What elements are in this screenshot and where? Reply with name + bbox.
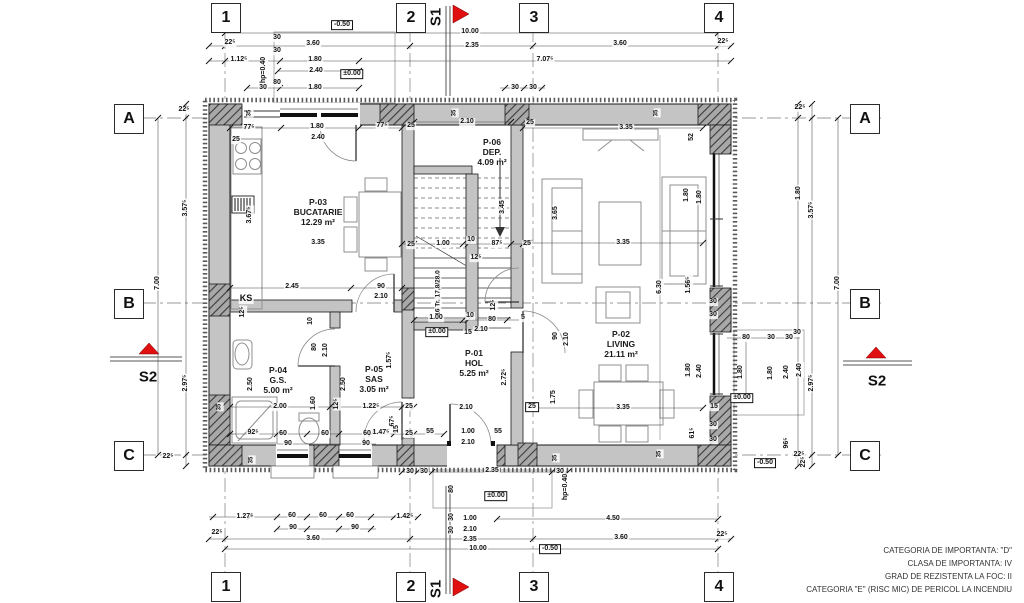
dimension-label: 30 — [419, 468, 429, 476]
dimension-label: 2.45 — [284, 283, 300, 291]
dimension-label: 1.80 — [696, 189, 704, 205]
dimension-label: 80 — [311, 342, 319, 352]
dimension-label: 35 — [217, 403, 224, 412]
dimension-label: 1.42⁵ — [396, 513, 415, 521]
dimension-label: 35 — [654, 109, 661, 118]
room-id: P-04 — [263, 365, 292, 375]
dimension-label: 80 — [487, 316, 497, 324]
dimension-label: 60 — [318, 512, 328, 520]
grid-bubble-row-A-left: A — [114, 104, 144, 134]
room-id: P-05 — [359, 364, 388, 374]
dimension-label: 3.45 — [499, 199, 507, 215]
dimension-label: 1.56⁵ — [685, 276, 693, 295]
dimension-label: 1.00 — [435, 240, 451, 248]
ks-label: KS — [239, 294, 254, 304]
notes-block: CATEGORIA DE IMPORTANTA: "D"CLASA DE IMP… — [806, 544, 1012, 596]
dimension-label: hp=0.40 — [562, 473, 570, 501]
dimension-label: 22⁵ — [715, 531, 728, 539]
dimension-label: 1.00 — [428, 314, 444, 322]
dimension-label: 3.35 — [310, 239, 326, 247]
dimension-label: ±0.00 — [484, 491, 507, 501]
room-label-p-02: P-02LIVING21.11 m² — [604, 329, 638, 359]
stair-label: 16 Tr. 17,8/28.0 — [434, 269, 441, 317]
room-name: SAS — [359, 374, 388, 384]
dimension-label: 12⁵ — [469, 254, 482, 262]
dimension-label: ±0.00 — [730, 393, 753, 403]
dimension-label: 35 — [247, 109, 254, 118]
dimension-label: 30 — [784, 334, 794, 342]
grid-bubble-col-1-bottom: 1 — [211, 572, 241, 602]
dimension-label: 90 — [288, 524, 298, 532]
dimension-label: 30 — [448, 512, 456, 522]
dimension-label: 2.35 — [462, 536, 478, 544]
dimension-label: 30 — [272, 47, 282, 55]
section-s2-left-label: S2 — [139, 369, 157, 386]
grid-bubble-col-4-bottom: 4 — [704, 572, 734, 602]
dimension-label: 2.40 — [796, 362, 804, 378]
dimension-label: 2.50 — [247, 376, 255, 392]
dimension-label: 90 — [361, 440, 371, 448]
room-name: LIVING — [604, 339, 638, 349]
room-id: P-01 — [459, 348, 488, 358]
grid-bubble-row-C-right: C — [850, 441, 880, 471]
section-s1-top-label: S1 — [428, 8, 445, 26]
dimension-label: 15 — [709, 403, 719, 411]
note-line: CATEGORIA DE IMPORTANTA: "D" — [806, 544, 1012, 557]
dimension-label: 30 — [405, 468, 415, 476]
dimension-label: 2.97⁵ — [808, 374, 816, 393]
dimension-label: 22⁵ — [210, 529, 223, 537]
dimension-label: 5 — [520, 314, 526, 322]
dimension-label: 25 — [231, 136, 241, 144]
dimension-label: 3.60 — [305, 40, 321, 48]
dimension-label: 90 — [552, 331, 560, 341]
dimension-label: 7.07⁵ — [536, 56, 555, 64]
dimension-label: 35 — [553, 454, 560, 463]
dimension-label: 2.10 — [322, 342, 330, 358]
dimension-label: 2.97⁵ — [182, 374, 190, 393]
dimension-label: 3.60 — [613, 534, 629, 542]
section-s1-bottom-label: S1 — [428, 580, 445, 598]
dimension-label: 2.40 — [308, 67, 324, 75]
note-line: CATEGORIA "E" (RISC MIC) DE PERICOL LA I… — [806, 583, 1012, 596]
dimension-label: 1.80 — [767, 365, 775, 381]
dimension-label: 10.00 — [460, 28, 480, 36]
dimension-label: 3.35 — [615, 404, 631, 412]
dimension-label: 90 — [350, 524, 360, 532]
dimension-label: hp=0.40 — [260, 56, 268, 84]
room-label-p-04: P-04G.S.5.00 m² — [263, 365, 292, 395]
dimension-label: 1.80 — [309, 123, 325, 131]
dimension-label: 15 — [393, 424, 401, 434]
dimension-label: 2.72⁵ — [501, 368, 509, 387]
room-area: 12.29 m² — [294, 217, 343, 227]
dimension-label: 3.57⁵ — [182, 199, 190, 218]
dimension-label: 6.30 — [656, 279, 664, 295]
dimension-label: 1.80 — [307, 56, 323, 64]
note-line: GRAD DE REZISTENTA LA FOC: II — [806, 570, 1012, 583]
dimension-label: 2.40 — [310, 134, 326, 142]
dimension-label: 87⁵ — [490, 240, 503, 248]
section-s2-right-label: S2 — [868, 373, 886, 390]
dimension-label: 60 — [362, 430, 372, 438]
dimension-label: 30 — [766, 334, 776, 342]
dimension-label: 2.10 — [473, 326, 489, 334]
dimension-label: 3.35 — [618, 124, 634, 132]
dimension-label: -0.50 — [539, 544, 561, 554]
dimension-label: 92⁵ — [246, 429, 259, 437]
dimension-label: 1.80 — [307, 84, 323, 92]
dimension-label: 60 — [345, 512, 355, 520]
dimension-label: 12⁵ — [239, 305, 247, 318]
grid-bubble-col-3-top: 3 — [519, 3, 549, 33]
dimension-label: 25 — [404, 430, 414, 438]
dimension-label: 2.35 — [464, 42, 480, 50]
dimension-label: 35 — [657, 450, 664, 459]
dimension-label: 25 — [525, 119, 535, 127]
dimension-label: 4.50 — [605, 515, 621, 523]
room-label-p-03: P-03BUCATARIE12.29 m² — [294, 197, 343, 227]
dimension-label: 1.80 — [685, 362, 693, 378]
dimension-label: 52 — [688, 132, 696, 142]
dimension-label: 55 — [493, 428, 503, 436]
grid-bubble-col-1-top: 1 — [211, 3, 241, 33]
dimension-label: 3.35 — [615, 239, 631, 247]
dimension-label: 55 — [425, 428, 435, 436]
dimension-label: 1.00 — [462, 515, 478, 523]
dimension-label: 60 — [278, 430, 288, 438]
dimension-label: 2.00 — [272, 403, 288, 411]
room-label-p-01: P-01HOL5.25 m² — [459, 348, 488, 378]
dimension-label: 10 — [465, 312, 475, 320]
dimension-label: 12⁵ — [490, 298, 498, 311]
grid-bubble-col-3-bottom: 3 — [519, 572, 549, 602]
room-area: 4.09 m² — [477, 157, 506, 167]
grid-bubble-row-B-right: B — [850, 289, 880, 319]
room-id: P-02 — [604, 329, 638, 339]
dimension-label: 90 — [283, 440, 293, 448]
dimension-label: 35 — [249, 456, 256, 465]
dimension-label: 15 — [463, 329, 473, 337]
dimension-label: 25 — [406, 122, 416, 130]
dimension-label: 2.35 — [484, 467, 500, 475]
dimension-label: 1.12⁵ — [230, 56, 249, 64]
grid-bubble-row-A-right: A — [850, 104, 880, 134]
room-label-p-05: P-05SAS3.05 m² — [359, 364, 388, 394]
dimension-label: 2.50 — [340, 376, 348, 392]
dimension-label: 77⁵ — [375, 122, 388, 130]
dimension-label: 3.67⁵ — [246, 206, 254, 225]
dimension-label: 2.10 — [458, 404, 474, 412]
dimension-label: 1.57⁵ — [386, 351, 394, 370]
grid-bubble-col-2-top: 2 — [396, 3, 426, 33]
dimension-label: -0.50 — [331, 20, 353, 30]
dimension-label: 10 — [466, 236, 476, 244]
room-name: BUCATARIE — [294, 207, 343, 217]
room-area: 5.00 m² — [263, 385, 292, 395]
room-area: 5.25 m² — [459, 368, 488, 378]
room-area: 3.05 m² — [359, 384, 388, 394]
dimension-label: 25 — [522, 240, 532, 248]
dimension-label: 2.40 — [696, 363, 704, 379]
dimension-label: 1.47⁵ — [372, 429, 391, 437]
dimension-label: 2.10 — [462, 526, 478, 534]
dimension-label: 2.10 — [563, 331, 571, 347]
dimension-label: 30 — [708, 421, 718, 429]
room-label-p-06: P-06DEP.4.09 m² — [477, 137, 506, 167]
dimension-label: 60 — [287, 512, 297, 520]
dimension-label: 25 — [525, 402, 539, 412]
dimension-label: 10 — [307, 316, 315, 326]
dimension-label: 2.10 — [459, 118, 475, 126]
dimension-label: 25 — [404, 403, 414, 411]
room-name: G.S. — [263, 375, 292, 385]
dimension-label: 1.00 — [460, 428, 476, 436]
dimension-label: 7.00 — [834, 275, 842, 291]
room-id: P-03 — [294, 197, 343, 207]
dimension-label: 2.40 — [783, 364, 791, 380]
dimension-label: 30 — [510, 84, 520, 92]
dimension-label: 30 — [258, 84, 268, 92]
dimension-label: 30 — [272, 34, 282, 42]
dimension-label: 3.57⁵ — [808, 201, 816, 220]
dimension-label: 35 — [452, 109, 459, 118]
dimension-label: 3.65 — [552, 205, 560, 221]
room-name: HOL — [459, 358, 488, 368]
dimension-label: 80 — [741, 334, 751, 342]
dimension-label: 61⁵ — [689, 426, 697, 439]
dimension-label: 25 — [406, 241, 416, 249]
grid-bubble-row-C-left: C — [114, 441, 144, 471]
dimension-label: 30 — [528, 84, 538, 92]
dimension-label: 80 — [272, 79, 282, 87]
dimension-label: 22⁵ — [223, 39, 236, 47]
dimension-label: 1.80 — [795, 185, 803, 201]
dimension-label: 80 — [448, 484, 456, 494]
dimension-label: 30 — [448, 525, 456, 535]
dimension-label: 12⁵ — [333, 397, 341, 410]
dimension-label: 1.75 — [550, 389, 558, 405]
dimension-label: 7.00 — [154, 275, 162, 291]
dimension-label: -0.50 — [754, 458, 776, 468]
dimension-label: 90 — [376, 283, 386, 291]
dimension-label: 22⁵ — [177, 106, 190, 114]
dimension-label: 1.22⁵ — [362, 403, 381, 411]
dimension-label: 2.10 — [373, 293, 389, 301]
dimension-label: 1.80 — [683, 187, 691, 203]
dimension-label: 22⁵ — [793, 104, 806, 112]
dimension-label: 1.60 — [310, 395, 318, 411]
note-line: CLASA DE IMPORTANTA: IV — [806, 557, 1012, 570]
grid-bubble-col-4-top: 4 — [704, 3, 734, 33]
dimension-label: 2.10 — [460, 439, 476, 447]
dimension-label: 96⁵ — [783, 436, 791, 449]
grid-bubble-row-B-left: B — [114, 289, 144, 319]
dimension-label: 22⁵ — [800, 455, 808, 468]
grid-bubble-col-2-bottom: 2 — [396, 572, 426, 602]
floor-plan-canvas: S1 S1 S2 S2 -0.5010.002.3522⁵3.603.6022⁵… — [0, 0, 1024, 603]
dimension-label: ±0.00 — [425, 327, 448, 337]
dimension-label: 3.60 — [612, 40, 628, 48]
dimension-label: 22⁵ — [161, 453, 174, 461]
room-id: P-06 — [477, 137, 506, 147]
room-area: 21.11 m² — [604, 349, 638, 359]
dimension-label: ±0.00 — [340, 69, 363, 79]
room-name: DEP. — [477, 147, 506, 157]
dimension-label: 22⁵ — [716, 38, 729, 46]
dimension-label: 30 — [708, 436, 718, 444]
dimension-label: 1.27⁵ — [236, 513, 255, 521]
dimension-label: 77⁵ — [242, 124, 255, 132]
dimension-label: 60 — [320, 430, 330, 438]
dimension-label: 1.80 — [737, 364, 745, 380]
dimension-label: 30 — [708, 298, 718, 306]
dimension-label: 10.00 — [468, 545, 488, 553]
dimension-label: 3.60 — [305, 535, 321, 543]
dimension-label: 30 — [708, 311, 718, 319]
